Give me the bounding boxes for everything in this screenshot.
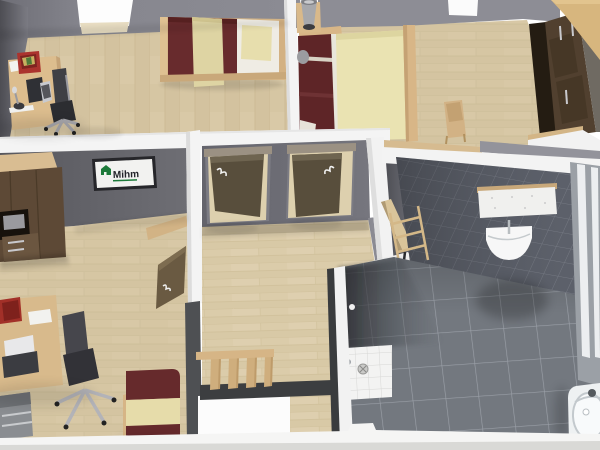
svg-text:Mihm: Mihm — [113, 169, 140, 181]
